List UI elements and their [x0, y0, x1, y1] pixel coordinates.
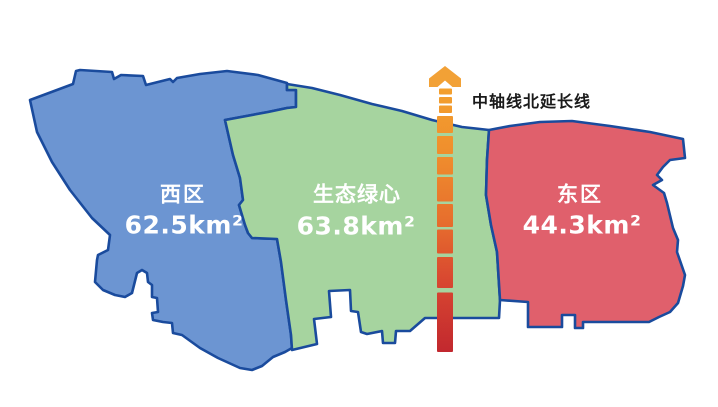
green-heart-area: 63.8km²: [297, 214, 416, 239]
north-axis-extension-label: 中轴线北延长线: [472, 88, 591, 112]
district-map-infographic: 西区 62.5km² 生态绿心 63.8km² 东区 44.3km² 中轴线北延…: [0, 0, 718, 407]
axis-dashes: [437, 89, 453, 353]
west-district-area: 62.5km²: [125, 213, 244, 238]
east-district-area: 44.3km²: [523, 213, 642, 238]
east-district-label: 东区: [557, 185, 603, 206]
west-district-label: 西区: [160, 185, 206, 206]
up-arrow-icon: [429, 66, 461, 87]
green-heart-label: 生态绿心: [313, 185, 401, 206]
